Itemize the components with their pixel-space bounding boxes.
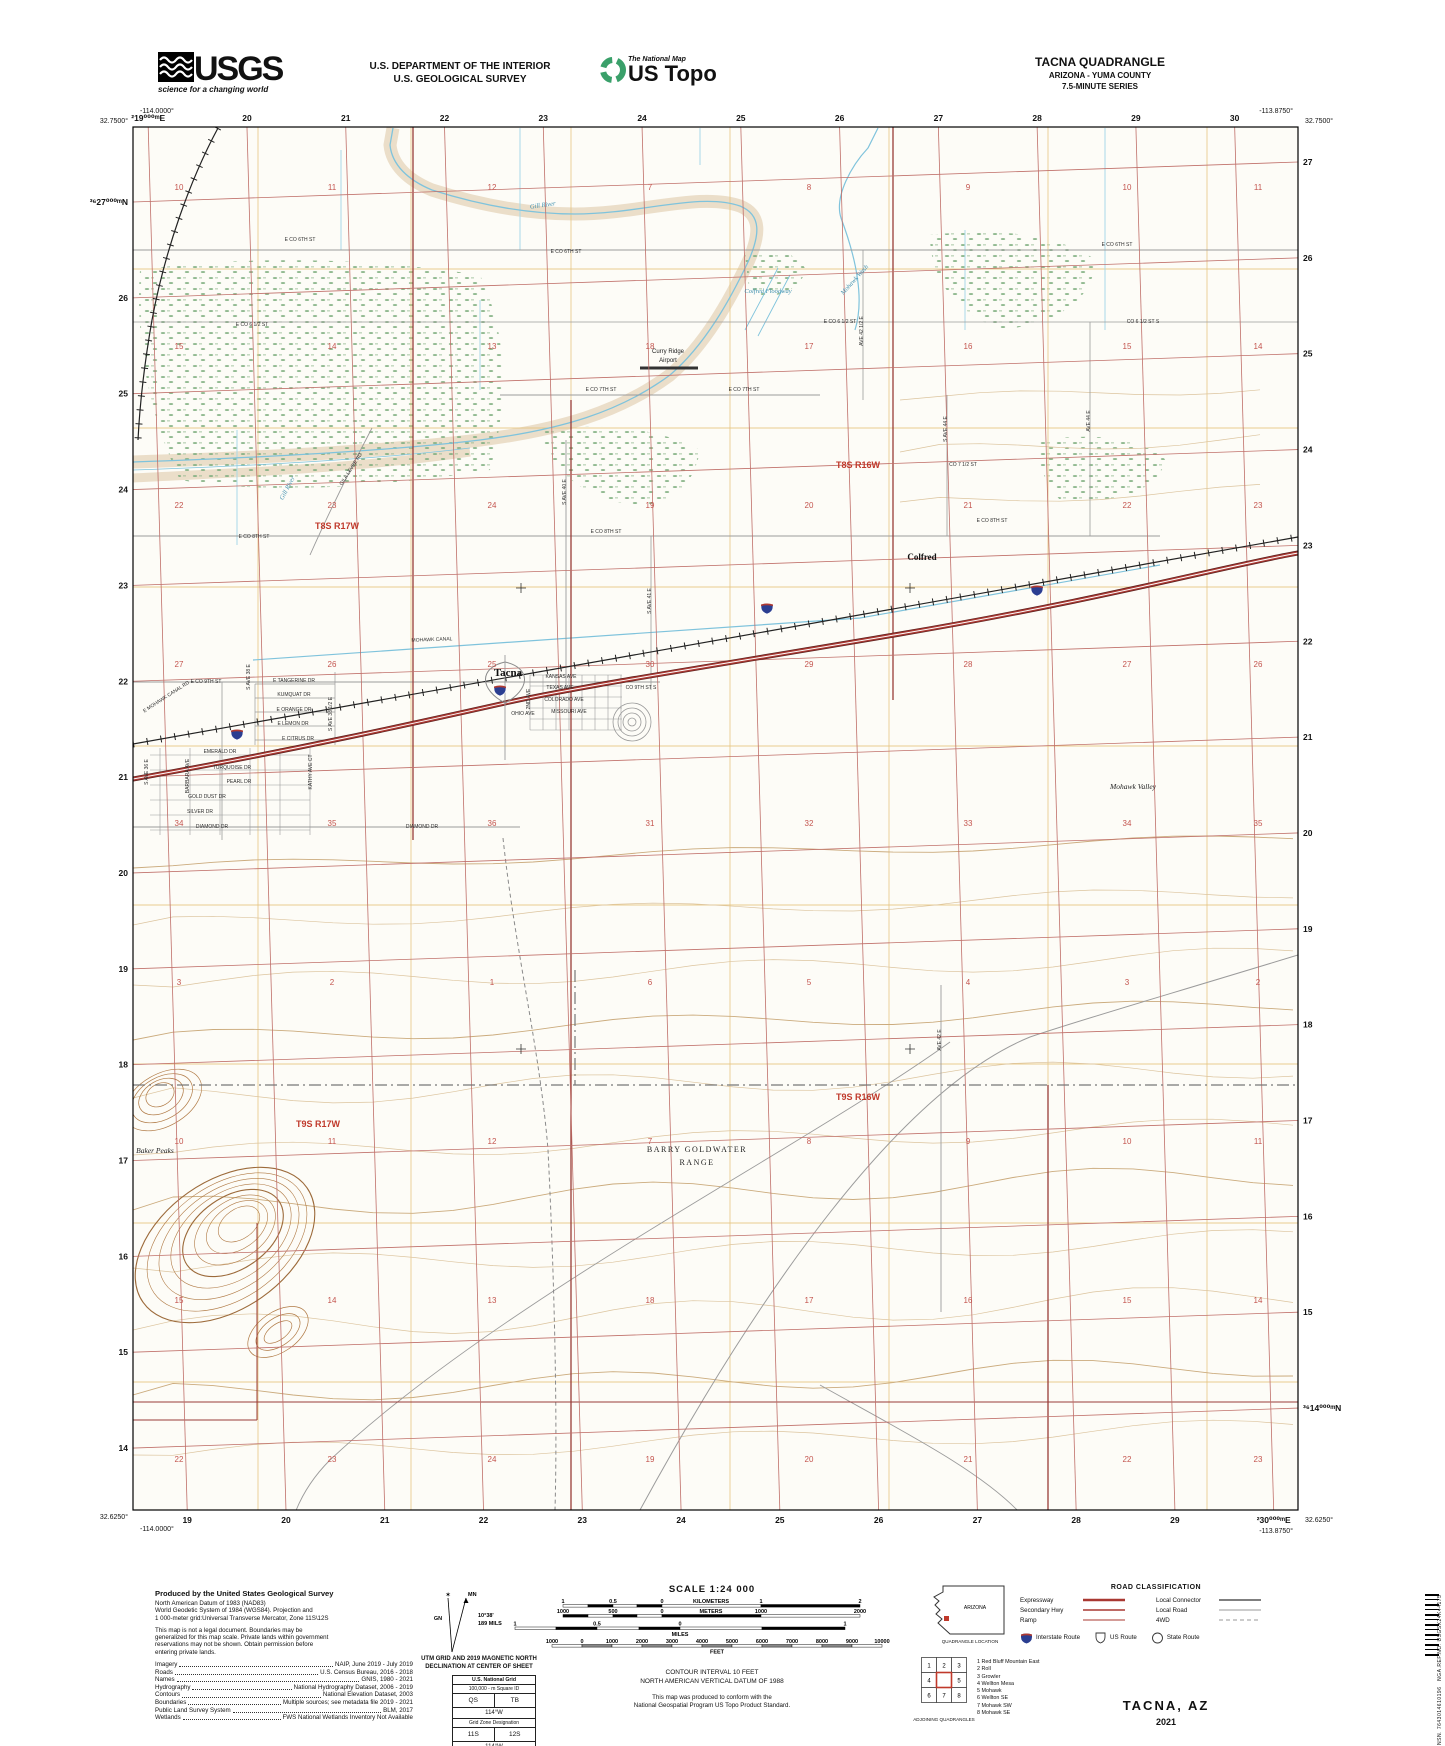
us-topo-map-sheet: USGS science for a changing world U.S. D… bbox=[0, 0, 1445, 1746]
credit-intro-line: World Geodetic System of 1984 (WGS84). P… bbox=[155, 1607, 413, 1614]
section-number: 15 bbox=[1123, 1296, 1132, 1305]
corner-coord: 32.7500° bbox=[100, 117, 128, 125]
township-label: T9S R16W bbox=[836, 1092, 881, 1102]
utm-northing-right: 23 bbox=[1303, 540, 1313, 550]
adjoining-quadrangles-caption: ADJOINING QUADRANGLES bbox=[896, 1717, 992, 1722]
sheet-name: TACNA, AZ bbox=[1076, 1698, 1256, 1713]
section-number: 11 bbox=[1254, 1137, 1263, 1146]
road-class-row: Local Road bbox=[1156, 1605, 1292, 1615]
adjoining-quad-name: 3 Growler bbox=[977, 1674, 1040, 1681]
section-number: 23 bbox=[328, 501, 337, 510]
svg-text:9000: 9000 bbox=[846, 1639, 858, 1645]
section-number: 30 bbox=[646, 660, 655, 669]
section-number: 14 bbox=[328, 342, 337, 351]
svg-text:3000: 3000 bbox=[666, 1639, 678, 1645]
svg-text:KILOMETERS: KILOMETERS bbox=[693, 1599, 729, 1605]
credit-note-line: generalized for this map scale. Private … bbox=[155, 1634, 413, 1641]
adjoining-quad-name: 7 Mohawk SW bbox=[977, 1703, 1040, 1710]
usng-square-a: QS bbox=[453, 1694, 495, 1707]
svg-text:MN: MN bbox=[468, 1592, 477, 1598]
street-label: SILVER DR bbox=[187, 809, 213, 815]
section-number: 21 bbox=[964, 501, 973, 510]
utm-easting-top: 22 bbox=[440, 113, 450, 123]
adjoining-quad-name: 1 Red Bluff Mountain East bbox=[977, 1659, 1040, 1666]
street-label: S AVE 38 E bbox=[246, 663, 252, 689]
road-class-row: Local Connector bbox=[1156, 1595, 1292, 1605]
section-number: 23 bbox=[1254, 1455, 1263, 1464]
utm-easting-top: 24 bbox=[637, 113, 647, 123]
interstate-shield-icon bbox=[1020, 1631, 1033, 1644]
credit-intro-line: 1 000-meter grid:Universal Transverse Me… bbox=[155, 1615, 413, 1622]
svg-text:10000: 10000 bbox=[874, 1639, 889, 1645]
credit-row: ContoursNational Elevation Dataset, 2003 bbox=[155, 1691, 413, 1699]
credit-note-line: This map is not a legal document. Bounda… bbox=[155, 1627, 413, 1634]
svg-text:0: 0 bbox=[660, 1599, 663, 1605]
street-label: KUMQUAT DR bbox=[277, 692, 311, 698]
credit-row: ImageryNAIP, June 2019 - July 2019 bbox=[155, 1661, 413, 1669]
usng-meridian-b: 114°W bbox=[453, 1742, 535, 1746]
section-number: 34 bbox=[175, 819, 184, 828]
section-number: 9 bbox=[966, 183, 971, 192]
svg-text:1: 1 bbox=[561, 1599, 564, 1605]
section-number: 27 bbox=[1123, 660, 1132, 669]
road-classification-legend: ROAD CLASSIFICATION ExpresswaySecondary … bbox=[1020, 1584, 1292, 1644]
street-label: BARBARA AVE bbox=[185, 758, 191, 793]
svg-text:6000: 6000 bbox=[756, 1639, 768, 1645]
usng-title: U.S. National Grid bbox=[453, 1676, 535, 1685]
utm-northing-right: 17 bbox=[1303, 1116, 1313, 1126]
section-number: 10 bbox=[175, 183, 184, 192]
street-label: E CO 9TH ST bbox=[191, 679, 222, 685]
utm-easting-top: 28 bbox=[1032, 113, 1042, 123]
street-label: E CO 6 1/2 ST bbox=[824, 319, 857, 325]
place-label: Curry Ridge bbox=[652, 349, 685, 355]
utm-easting-top: 21 bbox=[341, 113, 351, 123]
svg-text:1000: 1000 bbox=[546, 1639, 558, 1645]
svg-text:GN: GN bbox=[434, 1616, 442, 1622]
utm-northing-right: 26 bbox=[1303, 253, 1313, 263]
utm-northing-left: 19 bbox=[119, 964, 129, 974]
street-label: AVE 44 E bbox=[1086, 410, 1092, 432]
corner-coord: 32.7500° bbox=[1305, 117, 1333, 125]
route-symbol-item: US Route bbox=[1094, 1631, 1137, 1644]
section-number: 26 bbox=[328, 660, 337, 669]
section-number: 8 bbox=[807, 1137, 812, 1146]
credit-row: NamesGNIS, 1980 - 2021 bbox=[155, 1676, 413, 1684]
road-class-row: Expressway bbox=[1020, 1595, 1156, 1605]
route-symbol-item: State Route bbox=[1151, 1631, 1200, 1644]
street-label: CO 6 1/2 ST S bbox=[1127, 319, 1160, 325]
credit-row: WetlandsFWS National Wetlands Inventory … bbox=[155, 1714, 413, 1722]
svg-text:1000: 1000 bbox=[755, 1609, 767, 1615]
utm-northing-left: 24 bbox=[119, 485, 129, 495]
utm-easting-bottom: 26 bbox=[874, 1515, 884, 1525]
svg-text:✶: ✶ bbox=[445, 1591, 451, 1599]
svg-text:8000: 8000 bbox=[816, 1639, 828, 1645]
utm-northing-right: 21 bbox=[1303, 732, 1313, 742]
street-label: E CO 8TH ST bbox=[591, 529, 622, 535]
svg-text:1: 1 bbox=[513, 1622, 516, 1628]
section-number: 23 bbox=[1254, 501, 1263, 510]
utm-northing-left: 23 bbox=[119, 580, 129, 590]
section-number: 6 bbox=[648, 978, 653, 987]
street-label: DIAMOND DR bbox=[406, 824, 439, 830]
street-label: DIAMOND DR bbox=[196, 824, 229, 830]
utm-northing-left: 22 bbox=[119, 676, 129, 686]
quadrangle-location-map: ARIZONA bbox=[933, 1585, 1007, 1637]
credit-note-line: entering private lands. bbox=[155, 1649, 413, 1656]
corner-coord: 32.6250° bbox=[1305, 1516, 1333, 1524]
street-label: TURQUOISE DR bbox=[213, 765, 252, 771]
street-label: E CO 6TH ST bbox=[1102, 242, 1133, 248]
section-number: 3 bbox=[1125, 978, 1130, 987]
utm-northing-left: 16 bbox=[119, 1251, 129, 1261]
section-number: 15 bbox=[1123, 342, 1132, 351]
svg-text:1000: 1000 bbox=[606, 1639, 618, 1645]
svg-text:2000: 2000 bbox=[636, 1639, 648, 1645]
route-symbol-item: Interstate Route bbox=[1020, 1631, 1080, 1644]
section-number: 7 bbox=[648, 183, 653, 192]
section-number: 32 bbox=[805, 819, 814, 828]
utm-northing-left: 14 bbox=[119, 1443, 129, 1453]
street-label: KANSAS AVE bbox=[545, 674, 577, 680]
utm-northing-right: 16 bbox=[1303, 1211, 1313, 1221]
svg-text:0: 0 bbox=[678, 1622, 681, 1628]
corner-coord: -114.0000° bbox=[140, 1525, 174, 1533]
svg-text:4000: 4000 bbox=[696, 1639, 708, 1645]
utm-easting-bottom: 21 bbox=[380, 1515, 390, 1525]
utm-easting-top: 30 bbox=[1230, 113, 1240, 123]
street-label: KATHY AVE CT bbox=[308, 754, 314, 789]
corner-coord: -113.8750° bbox=[1259, 1527, 1293, 1535]
section-number: 14 bbox=[1254, 1296, 1263, 1305]
section-number: 20 bbox=[805, 501, 814, 510]
credit-row: BoundariesMultiple sources; see metadata… bbox=[155, 1699, 413, 1707]
street-label: E CO 6TH ST bbox=[551, 249, 582, 255]
street-label: E CO 8TH ST bbox=[977, 518, 1008, 524]
section-number: 29 bbox=[805, 660, 814, 669]
section-number: 14 bbox=[328, 1296, 337, 1305]
usng-zone-b: 12S bbox=[495, 1728, 536, 1741]
section-number: 24 bbox=[488, 501, 497, 510]
section-number: 2 bbox=[1256, 978, 1261, 987]
adjoining-quad-name: 2 Roll bbox=[977, 1666, 1040, 1673]
quadrangle-location-caption: QUADRANGLE LOCATION bbox=[920, 1639, 1020, 1644]
utm-easting-bottom: 19 bbox=[182, 1515, 192, 1525]
section-number: 4 bbox=[966, 978, 971, 987]
street-label: E CO 6TH ST bbox=[285, 237, 316, 243]
section-number: 15 bbox=[175, 1296, 184, 1305]
utm-northing-right: 27 bbox=[1303, 157, 1313, 167]
svg-text:2: 2 bbox=[858, 1599, 861, 1605]
section-number: 16 bbox=[964, 1296, 973, 1305]
township-label: T8S R16W bbox=[836, 460, 881, 470]
utm-easting-top: 26 bbox=[835, 113, 845, 123]
road-class-row: Ramp bbox=[1020, 1615, 1156, 1625]
section-number: 10 bbox=[1123, 1137, 1132, 1146]
section-number: 36 bbox=[488, 819, 497, 828]
utm-easting-bottom: 22 bbox=[479, 1515, 489, 1525]
quad-location-marker bbox=[944, 1616, 949, 1621]
utm-easting-bottom: 20 bbox=[281, 1515, 291, 1525]
place-label: Colfred bbox=[907, 552, 936, 562]
section-number: 26 bbox=[1254, 660, 1263, 669]
scale-title: SCALE 1:24 000 bbox=[562, 1584, 862, 1595]
svg-text:0: 0 bbox=[580, 1639, 583, 1645]
corner-coord: 32.6250° bbox=[100, 1513, 128, 1521]
section-number: 19 bbox=[646, 1455, 655, 1464]
utm-northing-left: 17 bbox=[119, 1156, 129, 1166]
township-label: T8S R17W bbox=[315, 521, 360, 531]
utm-northing-left: 15 bbox=[119, 1347, 129, 1357]
credit-row: HydrographyNational Hydrography Dataset,… bbox=[155, 1684, 413, 1692]
svg-text:5000: 5000 bbox=[726, 1639, 738, 1645]
section-number: 16 bbox=[964, 342, 973, 351]
water-label: Colfred Floodway bbox=[744, 288, 791, 295]
svg-text:1: 1 bbox=[759, 1599, 762, 1605]
utm-northing-left: 18 bbox=[119, 1060, 129, 1070]
street-label: S AVE 44 E bbox=[943, 415, 949, 441]
utm-northing-right: 22 bbox=[1303, 636, 1313, 646]
adjoining-quad-name: 5 Mohawk bbox=[977, 1688, 1040, 1695]
section-number: 10 bbox=[175, 1137, 184, 1146]
street-label: CO 9TH ST S bbox=[626, 685, 657, 691]
road-class-row: Secondary Hwy bbox=[1020, 1605, 1156, 1615]
adjoining-quadrangles-grid: 12345678 bbox=[920, 1656, 970, 1706]
section-number: 11 bbox=[328, 1137, 337, 1146]
adjoining-quad-name: 4 Wellton Mesa bbox=[977, 1681, 1040, 1688]
section-number: 22 bbox=[1123, 501, 1132, 510]
utm-easting-bottom: ²30⁰⁰⁰ᵐE bbox=[1257, 1515, 1291, 1525]
svg-text:0: 0 bbox=[660, 1609, 663, 1615]
corner-coord: -114.0000° bbox=[140, 107, 174, 115]
state-route-circle-icon bbox=[1151, 1631, 1164, 1644]
usng-box: U.S. National Grid 100,000 - m Square ID… bbox=[452, 1675, 536, 1746]
usng-zone-a: 11S bbox=[453, 1728, 495, 1741]
place-label: Airport bbox=[659, 358, 677, 364]
section-number: 13 bbox=[488, 342, 497, 351]
street-label: MISSOURI AVE bbox=[551, 709, 587, 715]
utm-northing-left: 20 bbox=[119, 868, 129, 878]
section-number: 19 bbox=[646, 501, 655, 510]
contour-interval-note: CONTOUR INTERVAL 10 FEET NORTH AMERICAN … bbox=[562, 1669, 862, 1686]
street-label: EMERALD DR bbox=[204, 749, 237, 755]
utm-northing-right: 20 bbox=[1303, 828, 1313, 838]
section-number: 33 bbox=[964, 819, 973, 828]
place-label: BARRY GOLDWATER bbox=[647, 1145, 747, 1154]
usng-zone-label: Grid Zone Designation bbox=[453, 1719, 535, 1728]
township-label: T9S R17W bbox=[296, 1119, 341, 1129]
utm-northing-right: 15 bbox=[1303, 1307, 1313, 1317]
svg-text:2000: 2000 bbox=[854, 1609, 866, 1615]
section-number: 23 bbox=[328, 1455, 337, 1464]
utm-northing-left: 21 bbox=[119, 772, 129, 782]
svg-text:0.5: 0.5 bbox=[593, 1622, 601, 1628]
utm-northing-right: 18 bbox=[1303, 1020, 1313, 1030]
utm-easting-top: 25 bbox=[736, 113, 746, 123]
utm-easting-bottom: 27 bbox=[973, 1515, 983, 1525]
section-number: 8 bbox=[807, 183, 812, 192]
street-label: E CO 7TH ST bbox=[729, 387, 760, 393]
street-label: S AVE 38 1/2 E bbox=[328, 696, 334, 731]
utm-easting-bottom: 23 bbox=[578, 1515, 588, 1525]
section-number: 14 bbox=[1254, 342, 1263, 351]
section-number: 35 bbox=[1254, 819, 1263, 828]
section-number: 17 bbox=[805, 1296, 814, 1305]
usng-square-label: 100,000 - m Square ID bbox=[453, 1685, 535, 1694]
sheet-year: 2021 bbox=[1076, 1717, 1256, 1727]
credit-row: Public Land Survey SystemBLM, 2017 bbox=[155, 1707, 413, 1715]
usng-square-b: TB bbox=[495, 1694, 536, 1707]
utm-easting-top: 29 bbox=[1131, 113, 1141, 123]
street-label: 2ND AVE bbox=[526, 688, 532, 709]
svg-text:MILES: MILES bbox=[672, 1632, 689, 1638]
street-label: S AVE 40 E bbox=[562, 478, 568, 504]
section-number: 13 bbox=[488, 1296, 497, 1305]
section-number: 34 bbox=[1123, 819, 1132, 828]
section-number: 3 bbox=[177, 978, 182, 987]
street-label: COLORADO AVE bbox=[544, 697, 584, 703]
utm-easting-bottom: 28 bbox=[1071, 1515, 1081, 1525]
section-number: 27 bbox=[175, 660, 184, 669]
conformance-note: This map was produced to conform with th… bbox=[562, 1694, 862, 1710]
street-label: S AVE 36 E bbox=[144, 758, 150, 784]
stock-number-text: NSN. 7643014610196 NGA.REF.NO. USGSX24K4… bbox=[1437, 1595, 1443, 1745]
place-label: Baker Peaks bbox=[136, 1146, 174, 1155]
section-number: 21 bbox=[964, 1455, 973, 1464]
svg-text:ARIZONA: ARIZONA bbox=[964, 1605, 987, 1611]
credit-note-line: reservations may not be shown. Obtain pe… bbox=[155, 1641, 413, 1648]
place-label: Mohawk Valley bbox=[1109, 782, 1157, 791]
utm-northing-right: ³⁶14⁰⁰⁰ᵐN bbox=[1303, 1403, 1341, 1413]
section-number: 1 bbox=[490, 978, 495, 987]
sheet-name-block: TACNA, AZ 2021 bbox=[1076, 1698, 1256, 1727]
svg-text:FEET: FEET bbox=[710, 1650, 725, 1656]
section-number: 18 bbox=[646, 1296, 655, 1305]
svg-text:METERS: METERS bbox=[700, 1609, 723, 1615]
scale-bars: 10.50KILOMETERS1210005000METERS100020001… bbox=[480, 1596, 920, 1662]
section-number: 10 bbox=[1123, 183, 1132, 192]
svg-text:7000: 7000 bbox=[786, 1639, 798, 1645]
street-label: E CITRUS DR bbox=[282, 736, 314, 742]
street-label: E TANGERINE DR bbox=[273, 678, 315, 684]
section-number: 20 bbox=[805, 1455, 814, 1464]
produced-by-title: Produced by the United States Geological… bbox=[155, 1589, 413, 1598]
section-number: 22 bbox=[1123, 1455, 1132, 1464]
section-number: 22 bbox=[175, 501, 184, 510]
street-label: E LEMON DR bbox=[277, 721, 309, 727]
street-label: AVE 42 1/2 E bbox=[859, 316, 865, 346]
street-label: CO 7 1/2 ST bbox=[949, 462, 977, 468]
street-label: E CO 7TH ST bbox=[586, 387, 617, 393]
svg-text:1000: 1000 bbox=[557, 1609, 569, 1615]
section-number: 12 bbox=[488, 1137, 497, 1146]
road-classification-title: ROAD CLASSIFICATION bbox=[1020, 1584, 1292, 1591]
adjoining-quadrangles-list: 1 Red Bluff Mountain East2 Roll3 Growler… bbox=[977, 1659, 1040, 1717]
utm-northing-right: 19 bbox=[1303, 924, 1313, 934]
utm-northing-right: 24 bbox=[1303, 445, 1313, 455]
section-number: 9 bbox=[966, 1137, 971, 1146]
street-label: PEARL DR bbox=[227, 779, 252, 785]
street-label: S AVE 41 E bbox=[647, 587, 653, 613]
credit-row: RoadsU.S. Census Bureau, 2016 - 2018 bbox=[155, 1669, 413, 1677]
adjoining-quad-name: 6 Wellton SE bbox=[977, 1695, 1040, 1702]
utm-northing-left: ³⁶27⁰⁰⁰ᵐN bbox=[90, 197, 128, 207]
utm-easting-bottom: 29 bbox=[1170, 1515, 1180, 1525]
street-label: TEXAS AVE bbox=[546, 685, 574, 691]
utm-northing-right: 25 bbox=[1303, 349, 1313, 359]
section-number: 28 bbox=[964, 660, 973, 669]
section-number: 22 bbox=[175, 1455, 184, 1464]
place-label: RANGE bbox=[679, 1158, 714, 1167]
utm-easting-bottom: 25 bbox=[775, 1515, 785, 1525]
usng-meridian-a: 114°W bbox=[453, 1708, 535, 1719]
section-number: 2 bbox=[330, 978, 335, 987]
section-number: 24 bbox=[488, 1455, 497, 1464]
topo-map: E CO 6TH STE CO 6TH STE CO 6TH STE CO 6 … bbox=[0, 0, 1445, 1746]
street-label: OHIO AVE bbox=[511, 711, 535, 717]
production-credits: Produced by the United States Geological… bbox=[155, 1589, 413, 1722]
section-number: 15 bbox=[175, 342, 184, 351]
utm-northing-left: 25 bbox=[119, 389, 129, 399]
section-number: 11 bbox=[1254, 183, 1263, 192]
section-number: 35 bbox=[328, 819, 337, 828]
svg-text:500: 500 bbox=[608, 1609, 617, 1615]
utm-easting-top: 20 bbox=[242, 113, 252, 123]
credit-intro-line: North American Datum of 1983 (NAD83) bbox=[155, 1600, 413, 1607]
street-label: GOLD DUST DR bbox=[188, 794, 226, 800]
section-number: 12 bbox=[488, 183, 497, 192]
street-label: AVE 42 E bbox=[937, 1029, 943, 1051]
section-number: 11 bbox=[328, 183, 337, 192]
section-number: 31 bbox=[646, 819, 655, 828]
utm-easting-bottom: 24 bbox=[676, 1515, 686, 1525]
us-route-shield-icon bbox=[1094, 1631, 1107, 1644]
svg-text:0.5: 0.5 bbox=[609, 1599, 617, 1605]
corner-coord: -113.8750° bbox=[1259, 107, 1293, 115]
utm-easting-top: 23 bbox=[539, 113, 549, 123]
section-number: 5 bbox=[807, 978, 812, 987]
utm-northing-left: 26 bbox=[119, 293, 129, 303]
svg-text:1: 1 bbox=[843, 1622, 846, 1628]
street-label: E ORANGE DR bbox=[276, 707, 311, 713]
adjoining-quad-name: 8 Mohawk SE bbox=[977, 1710, 1040, 1717]
place-label: Tacna bbox=[494, 667, 523, 679]
section-number: 17 bbox=[805, 342, 814, 351]
utm-easting-top: 27 bbox=[934, 113, 944, 123]
street-label: E CO 6 1/2 ST bbox=[236, 322, 269, 328]
road-class-row: 4WD bbox=[1156, 1615, 1292, 1625]
street-label: E CO 8TH ST bbox=[239, 534, 270, 540]
